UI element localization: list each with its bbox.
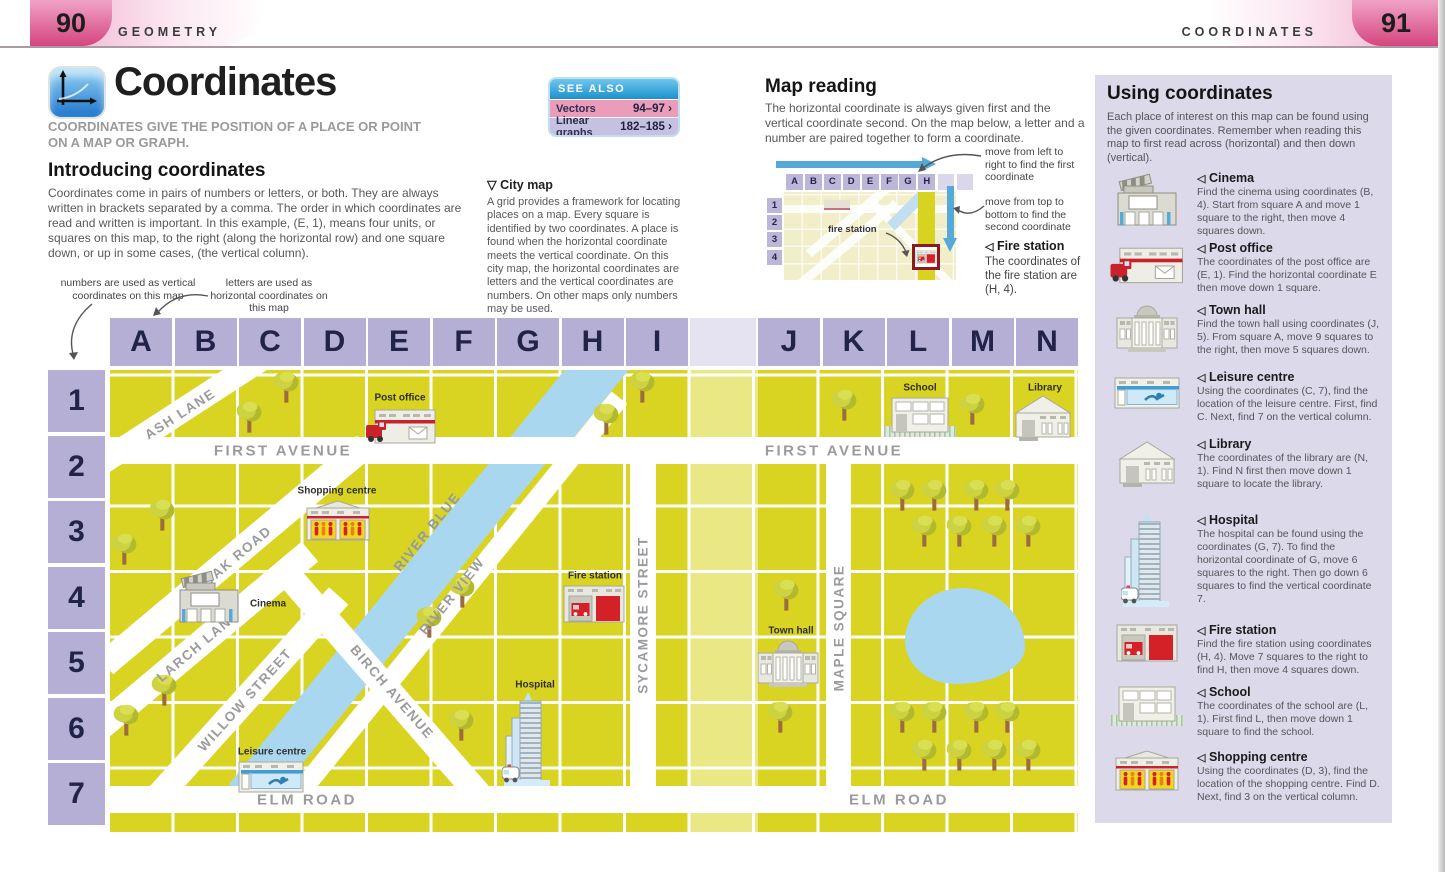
city-map-note-body: A grid provides a framework for locating… xyxy=(487,196,683,317)
mini-callout-title: Fire station xyxy=(997,239,1064,253)
sidebar-entry-library: ◁ Library The coordinates of the library… xyxy=(1103,437,1384,491)
map-row-4: 4 xyxy=(48,567,105,629)
triangle-left-icon: ◁ xyxy=(1197,687,1205,699)
note-letters-horizontal: letters are used as horizontal coordinat… xyxy=(206,277,332,315)
map-col-a: A xyxy=(110,318,172,366)
mini-row-2: 2 xyxy=(767,215,782,230)
entry-body: The coordinates of the post office are (… xyxy=(1197,256,1382,295)
sidebar-entry-school: ◁ School The coordinates of the school a… xyxy=(1103,685,1384,739)
cinema-icon xyxy=(1103,171,1191,232)
intro-body: Coordinates come in pairs of numbers or … xyxy=(48,186,463,261)
label-first-avenue-right: FIRST AVENUE xyxy=(765,443,903,460)
see-also-pages: 94–97 xyxy=(633,103,665,115)
map-col-b: B xyxy=(175,318,237,366)
triangle-down-icon: ▽ xyxy=(487,178,497,192)
mini-map: A B C D E F G H 1 2 3 4 fire station xyxy=(766,158,976,298)
mini-map-canvas xyxy=(784,192,956,280)
triangle-left-icon: ◁ xyxy=(1197,305,1205,317)
entry-title: Hospital xyxy=(1209,513,1258,527)
entry-title: Town hall xyxy=(1209,303,1266,317)
map-col-n: N xyxy=(1016,318,1078,366)
map-col-m: M xyxy=(952,318,1014,366)
coordinates-axes-icon xyxy=(48,66,106,119)
map-row-5: 5 xyxy=(48,632,105,694)
town-hall-icon xyxy=(1103,303,1191,358)
school-icon xyxy=(1103,685,1191,738)
mini-row-4: 4 xyxy=(767,250,782,265)
cinema-icon xyxy=(176,568,242,624)
map-row-1: 1 xyxy=(48,370,105,432)
entry-body: Using the coordinates (C, 7), find the l… xyxy=(1197,385,1382,424)
header-rule xyxy=(0,46,1445,48)
mini-row-1: 1 xyxy=(767,198,782,213)
sidebar-entry-fire-station: ◁ Fire station Find the fire station usi… xyxy=(1103,623,1384,677)
mini-col-a: A xyxy=(786,174,803,190)
post-office-icon xyxy=(1103,243,1191,296)
map-col-i: I xyxy=(626,318,688,366)
sidebar-intro: Each place of interest on this map can b… xyxy=(1107,111,1382,165)
triangle-left-icon: ◁ xyxy=(1197,752,1205,764)
sidebar-entry-cinema: ◁ Cinema Find the cinema using coordinat… xyxy=(1103,171,1384,238)
see-also-item-linear-graphs[interactable]: Linear graphs 182–185 › xyxy=(550,117,678,135)
mini-col-f: F xyxy=(881,174,898,190)
fire-station-icon xyxy=(562,584,626,624)
section-label-right: COORDINATES xyxy=(1182,25,1317,39)
triangle-left-icon: ◁ xyxy=(1197,625,1205,637)
triangle-left-icon: ◁ xyxy=(1197,439,1205,451)
label-post-office: Post office xyxy=(374,393,425,404)
page-number-left: 90 xyxy=(30,0,112,46)
map-reading-body: The horizontal coordinate is always give… xyxy=(765,101,1090,146)
entry-body: Find the fire station using coordinates … xyxy=(1197,638,1382,677)
intro-heading: Introducing coordinates xyxy=(48,160,265,182)
page-number-right: 91 xyxy=(1352,0,1440,46)
sidebar-entry-hospital: ◁ Hospital The hospital can be found usi… xyxy=(1103,513,1384,606)
section-label-left: GEOMETRY xyxy=(118,25,221,39)
town-hall-icon xyxy=(754,638,822,688)
see-also-header: SEE ALSO xyxy=(550,79,678,99)
label-fire-station: Fire station xyxy=(568,571,622,582)
book-edge xyxy=(1438,0,1445,872)
map-col-d: D xyxy=(304,318,366,366)
mini-col-c: C xyxy=(824,174,841,190)
entry-title: Leisure centre xyxy=(1209,370,1294,384)
entry-body: The coordinates of the library are (N, 1… xyxy=(1197,452,1382,491)
library-icon xyxy=(1103,439,1191,494)
library-icon xyxy=(1010,393,1076,443)
mini-callout-heading: ◁ Fire station xyxy=(985,239,1064,253)
entry-title: Post office xyxy=(1209,241,1273,255)
map-col-c: C xyxy=(239,318,301,366)
using-coordinates-panel: Using coordinates Each place of interest… xyxy=(1095,75,1392,823)
see-also-label: Linear graphs xyxy=(556,115,620,138)
shopping-centre-icon xyxy=(1103,750,1191,797)
map-row-7: 7 xyxy=(48,763,105,825)
map-col-j: J xyxy=(758,318,820,366)
see-also-box: SEE ALSO Vectors 94–97 › Linear graphs 1… xyxy=(548,77,680,137)
hospital-icon xyxy=(502,692,554,792)
map-row-6: 6 xyxy=(48,698,105,760)
map-canvas: ASH LANE FIRST AVENUE FIRST AVENUE OAK R… xyxy=(110,370,1078,832)
label-cinema: Cinema xyxy=(250,599,286,610)
city-map-note-title: City map xyxy=(500,178,553,192)
map-col-k: K xyxy=(823,318,885,366)
entry-body: The coordinates of the school are (L, 1)… xyxy=(1197,700,1382,739)
mini-callout-body: The coordinates of the fire station are … xyxy=(985,255,1085,297)
pointer-arrow xyxy=(148,288,212,320)
mini-building xyxy=(824,200,850,210)
chevron-right-icon: › xyxy=(668,121,672,133)
triangle-left-icon: ◁ xyxy=(1197,243,1205,255)
page-gutter-overlay xyxy=(688,318,758,832)
entry-body: Find the cinema using coordinates (B, 4)… xyxy=(1197,186,1382,238)
map-reading-heading: Map reading xyxy=(765,76,877,98)
chevron-right-icon: › xyxy=(668,103,672,115)
note-left-right: move from left to right to find the firs… xyxy=(985,146,1085,184)
map-col-e: E xyxy=(368,318,430,366)
mini-fire-station-icon xyxy=(912,244,940,270)
pointer-arrow xyxy=(884,230,914,260)
entry-body: The hospital can be found using the coor… xyxy=(1197,528,1382,606)
shopping-centre-icon xyxy=(305,500,371,542)
triangle-left-icon: ◁ xyxy=(1197,173,1205,185)
label-shopping-centre: Shopping centre xyxy=(298,486,377,497)
city-map: A B C D E F G H I J K L M N 1 2 3 4 5 6 … xyxy=(48,318,1078,832)
map-row-3: 3 xyxy=(48,501,105,563)
page-subtitle: COORDINATES GIVE THE POSITION OF A PLACE… xyxy=(48,119,433,151)
leisure-centre-icon xyxy=(1103,376,1191,417)
school-icon xyxy=(884,396,956,444)
mini-col-b: B xyxy=(805,174,822,190)
city-map-note-heading: ▽ City map xyxy=(487,177,553,192)
entry-body: Find the town hall using coordinates (J,… xyxy=(1197,318,1382,357)
sidebar-heading: Using coordinates xyxy=(1107,83,1273,105)
label-school: School xyxy=(903,383,936,394)
entry-body: Using the coordinates (D, 3), find the l… xyxy=(1197,765,1382,804)
pond xyxy=(905,588,1025,684)
triangle-left-icon: ◁ xyxy=(985,241,993,253)
sidebar-entry-leisure-centre: ◁ Leisure centre Using the coordinates (… xyxy=(1103,370,1384,424)
map-col-h: H xyxy=(562,318,624,366)
page-title: Coordinates xyxy=(114,60,336,105)
sidebar-entry-post-office: ◁ Post office The coordinates of the pos… xyxy=(1103,241,1384,295)
mini-row-3: 3 xyxy=(767,232,782,247)
label-hospital: Hospital xyxy=(515,680,554,691)
triangle-left-icon: ◁ xyxy=(1197,372,1205,384)
entry-title: School xyxy=(1209,685,1251,699)
label-library: Library xyxy=(1028,383,1062,394)
entry-title: Library xyxy=(1209,437,1251,451)
sidebar-entry-town-hall: ◁ Town hall Find the town hall using coo… xyxy=(1103,303,1384,357)
see-also-pages: 182–185 xyxy=(620,121,665,133)
fire-station-icon xyxy=(1103,623,1191,668)
mini-col-e: E xyxy=(862,174,879,190)
mini-col-d: D xyxy=(843,174,860,190)
post-office-icon xyxy=(365,405,437,451)
note-top-bottom: move from top to bottom to find the seco… xyxy=(985,196,1090,234)
hospital-icon xyxy=(1103,513,1191,618)
label-elm-road-right: ELM ROAD xyxy=(849,792,949,809)
entry-title: Cinema xyxy=(1209,171,1254,185)
sidebar-entry-shopping-centre: ◁ Shopping centre Using the coordinates … xyxy=(1103,750,1384,804)
pointer-arrow xyxy=(950,198,986,222)
map-row-2: 2 xyxy=(48,436,105,498)
label-first-avenue-left: FIRST AVENUE xyxy=(214,443,352,460)
map-col-g: G xyxy=(497,318,559,366)
see-also-label: Vectors xyxy=(556,103,596,115)
mini-fire-station-label: fire station xyxy=(828,224,877,235)
label-sycamore-street: SYCAMORE STREET xyxy=(636,536,651,694)
triangle-left-icon: ◁ xyxy=(1197,515,1205,527)
left-right-arrow xyxy=(776,161,922,168)
top-bottom-arrowhead xyxy=(943,238,957,252)
leisure-centre-icon xyxy=(237,760,305,796)
label-town-hall: Town hall xyxy=(768,626,813,637)
label-maple-square: MAPLE SQUARE xyxy=(832,565,847,692)
map-col-l: L xyxy=(887,318,949,366)
entry-title: Shopping centre xyxy=(1209,750,1308,764)
label-leisure-centre: Leisure centre xyxy=(238,747,306,758)
pointer-arrow xyxy=(913,150,983,178)
map-col-f: F xyxy=(433,318,495,366)
entry-title: Fire station xyxy=(1209,623,1276,637)
